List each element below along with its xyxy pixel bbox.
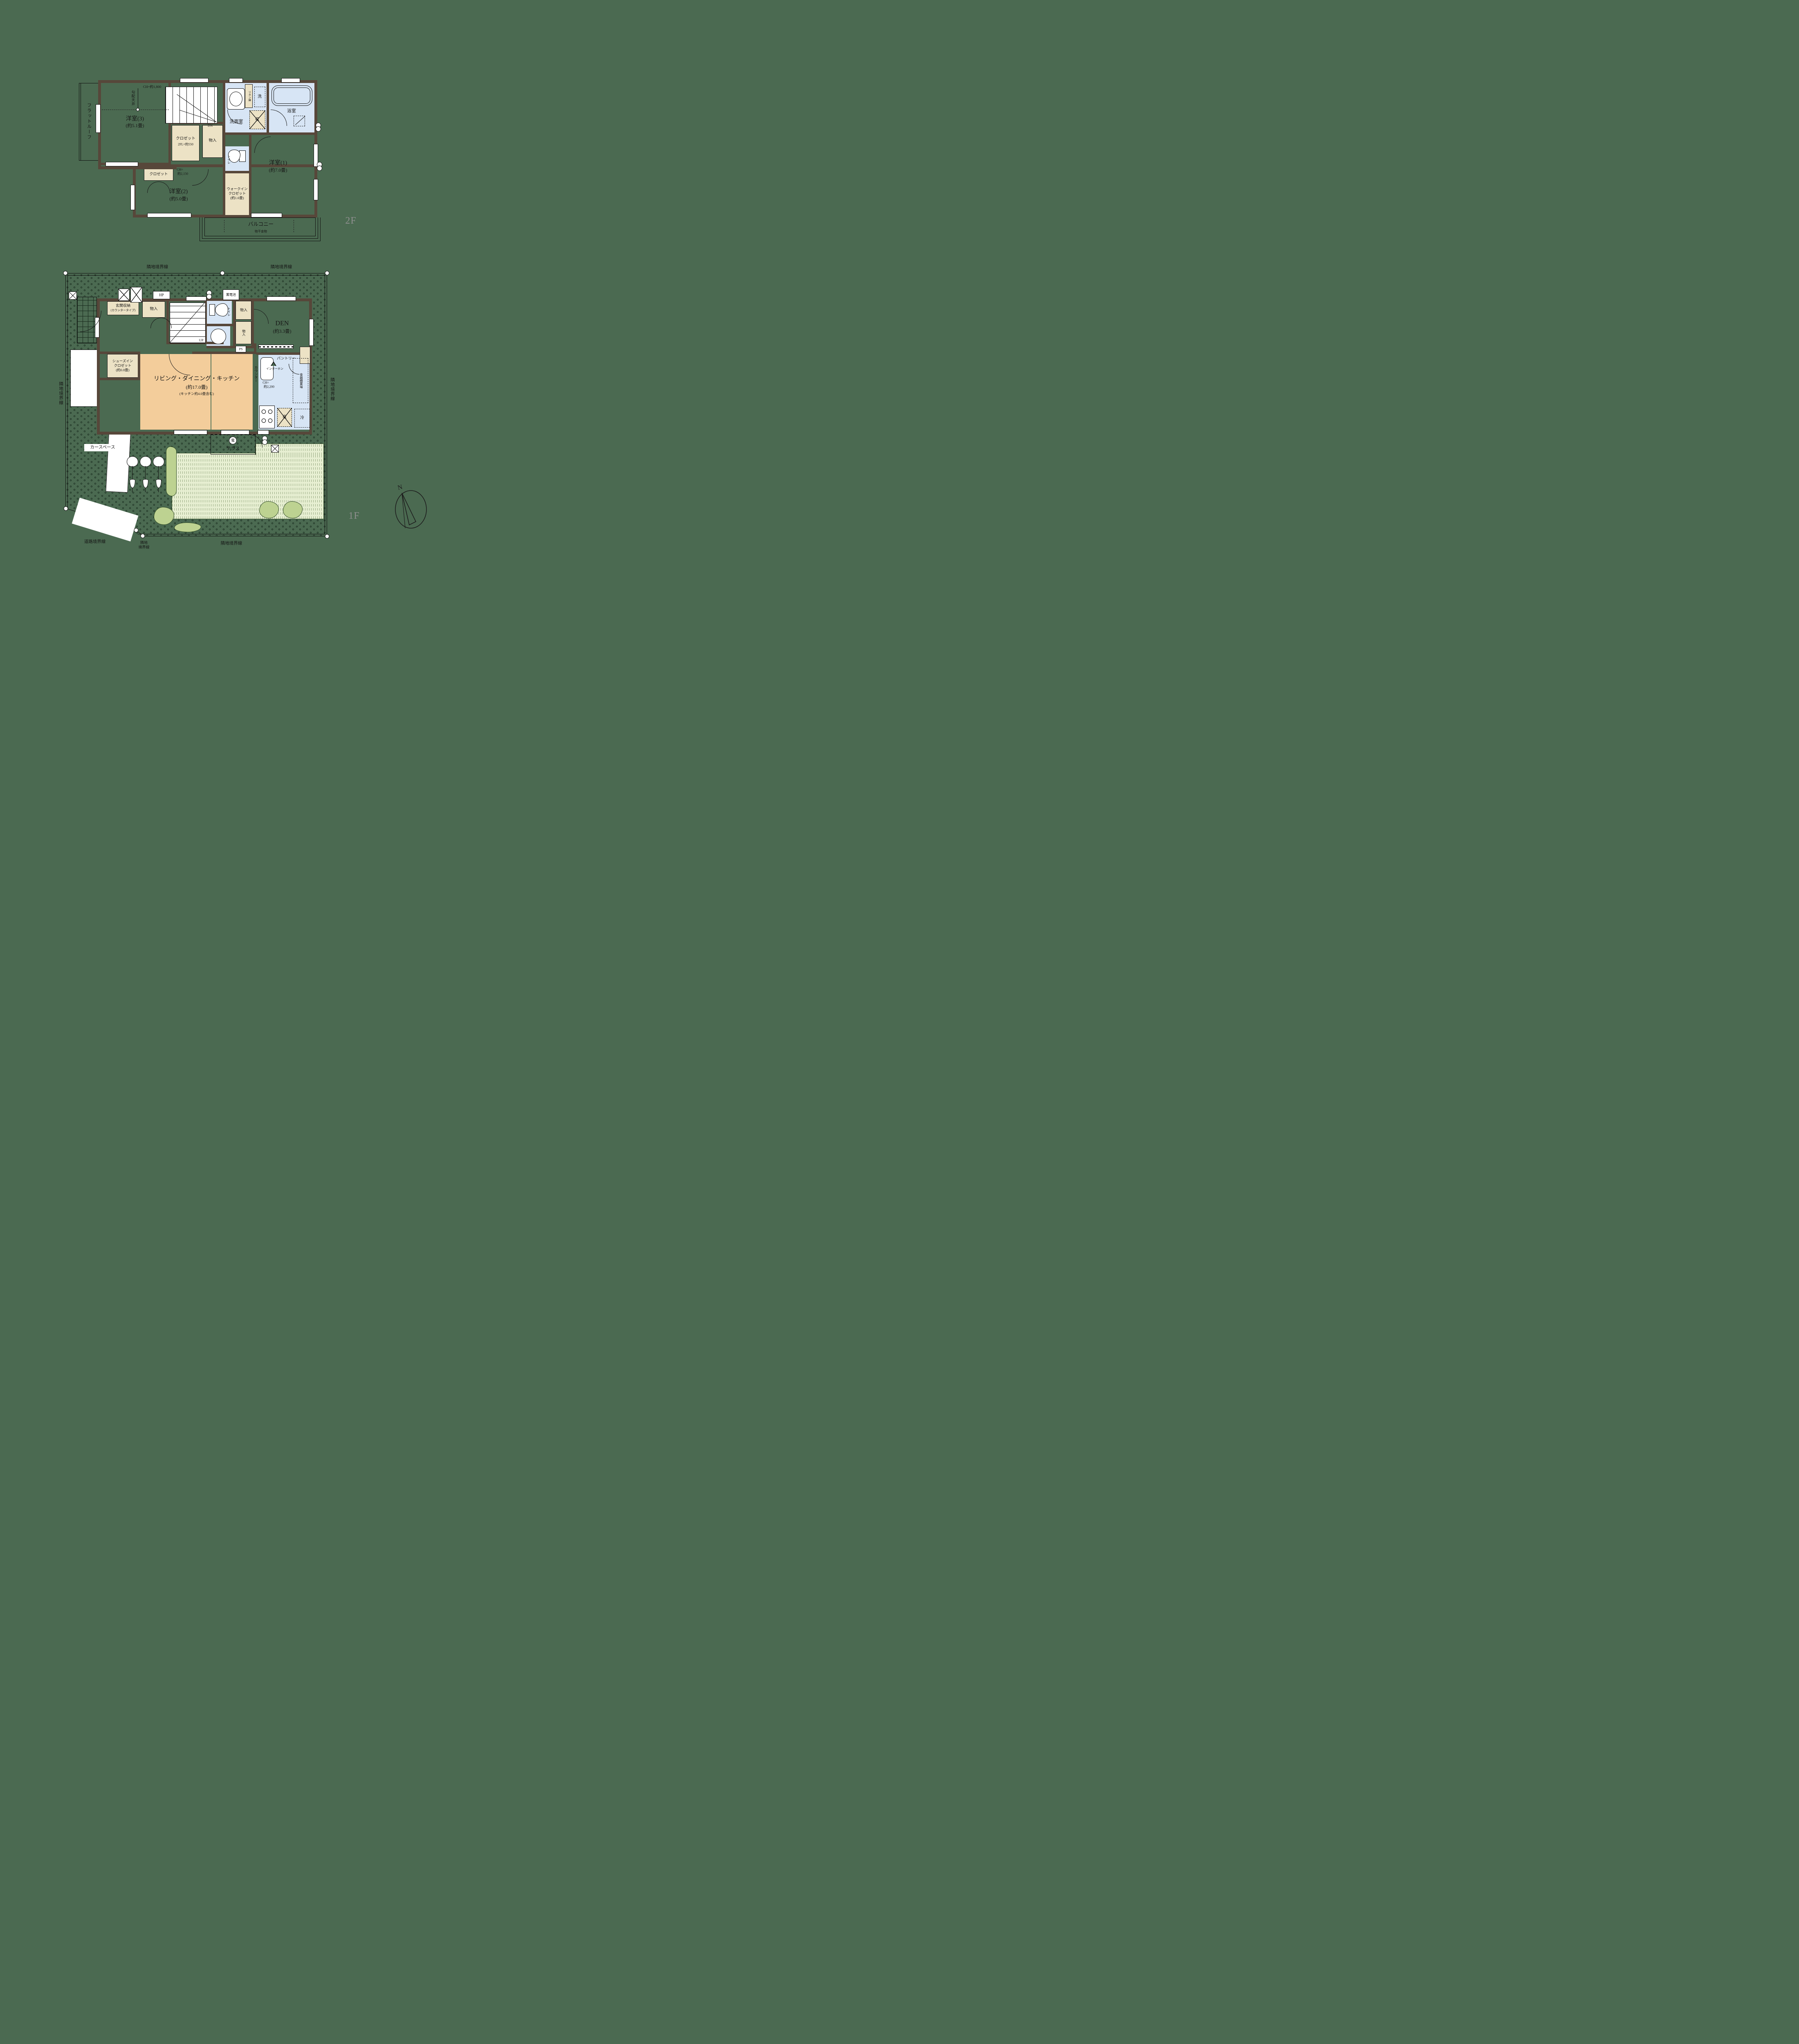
- boundary-right: 隣地境界線: [330, 377, 334, 401]
- car-space-label: カースペース: [90, 445, 115, 450]
- boundary-left: 隣地境界線: [58, 381, 63, 405]
- vent-fan-icon: [206, 290, 212, 299]
- yoshitsu2-name: 洋室(2): [170, 189, 188, 196]
- den-size: (約3.3畳): [273, 329, 291, 335]
- yoshitsu1-size: (約7.0畳): [269, 168, 287, 174]
- f2-closet-label: クロゼット: [176, 137, 195, 141]
- sic-line2: クロゼット: [114, 363, 132, 368]
- ldk-name: リビング・ダイニング・キッチン: [154, 376, 240, 383]
- stairs-up-label: UP: [199, 338, 204, 342]
- terrace-label: テラス: [227, 446, 240, 452]
- wic-line3: (約1.6畳): [230, 196, 244, 200]
- genkan-storage-note: (カウンタータイプ): [111, 309, 136, 312]
- ldk-note: (キッチン約4.0畳含む): [179, 392, 214, 396]
- f1-monoire-a-label: 物入: [150, 307, 157, 312]
- ps-label: PS: [239, 347, 243, 351]
- intercom-label: インターホン: [266, 367, 283, 370]
- vent-fan-icon: [316, 123, 321, 132]
- second-floor-plan: フラットルーフ CH=約1,800 勾配天井 洋室(3) (約5.1畳) DN …: [0, 0, 450, 262]
- f2-storage-label: 収: [255, 117, 259, 122]
- genkan-storage-label: 玄関収納: [116, 304, 130, 308]
- linen-label: リネン庫: [247, 91, 251, 101]
- stairs-dn-label: DN: [208, 123, 213, 128]
- ldk-size: (約17.0畳): [186, 384, 208, 390]
- yoshitsu3-size: (約5.1畳): [126, 123, 144, 129]
- ch2150-line1: CH=: [177, 168, 183, 171]
- f1-stairs: [170, 303, 206, 343]
- hp-label: HP: [159, 293, 164, 298]
- fridge-label: 冷: [300, 416, 304, 421]
- equipment-pad: [130, 287, 142, 303]
- yoshitsu2-size: (約5.0畳): [169, 197, 188, 202]
- yoshitsu1-name: 洋室(1): [269, 160, 287, 167]
- f1-toilet-icon: [215, 303, 228, 316]
- yoshitsu2-closet-label: クロゼット: [149, 172, 168, 177]
- f1-toilet-label: トイレ: [227, 307, 231, 316]
- bathtub-icon: [271, 85, 312, 106]
- compass-north-label: N: [397, 484, 404, 491]
- counter-label: カウンター: [254, 366, 258, 382]
- ev-outlet-label: 電: [231, 438, 235, 442]
- f2-toilet-label: トイレ: [227, 155, 231, 164]
- hanger-label: 物干金物: [255, 230, 267, 234]
- kitchen-storage-label: 収: [283, 415, 287, 420]
- senmen-label: 洗面室: [230, 119, 243, 125]
- wic-line2: クロゼット: [229, 191, 246, 195]
- f1-monoire-b-label: 物入: [240, 308, 247, 313]
- ch1800-label: CH=約1,800: [143, 85, 161, 89]
- equipment-pad: [69, 291, 77, 300]
- cupboard-label: 食器棚置場: [299, 373, 303, 388]
- f1-monoire-c-label: 物入: [242, 329, 245, 336]
- floor-plan-canvas: フラットルーフ CH=約1,800 勾配天井 洋室(3) (約5.1畳) DN …: [0, 0, 450, 603]
- ev-outlet-icon: 電: [229, 437, 237, 444]
- equipment-pad: [118, 289, 130, 301]
- boundary-bottom: 隣地境界線: [221, 541, 242, 546]
- floor-tag-2f: 2F: [345, 215, 356, 226]
- bath-label: 浴室: [287, 109, 296, 114]
- f2-closet-note: 2FL+約550: [178, 142, 193, 146]
- floor-tag-1f: 1F: [348, 510, 359, 522]
- boundary-top-left: 隣地境界線: [147, 265, 168, 270]
- ch2200-line2: 約2,200: [264, 385, 274, 388]
- boundary-corner-line1: 隣地: [140, 541, 148, 545]
- f2-monoire-label: 物入: [209, 139, 216, 143]
- lawn-upper: [256, 444, 324, 455]
- washer-label: 洗: [258, 94, 262, 99]
- battery-label: 蓄電池: [226, 293, 236, 296]
- vent-fan-icon: [262, 436, 267, 445]
- boundary-corner-line2: 境界線: [138, 545, 149, 550]
- pantry-label: パントリー: [277, 356, 295, 361]
- equipment-pad: [271, 445, 279, 453]
- sic-line3: (約0.8畳): [116, 368, 129, 372]
- ch2200-line1: CH=: [262, 381, 269, 384]
- den-name: DEN: [276, 320, 289, 328]
- stove-icon: [259, 406, 275, 428]
- hedge: [166, 446, 177, 496]
- sic-line1: シューズイン: [112, 359, 133, 363]
- vent-fan-icon: [317, 162, 322, 171]
- boundary-top-right: 隣地境界線: [271, 265, 292, 270]
- compass-icon: N: [386, 482, 433, 533]
- f2-stairs: [165, 87, 218, 123]
- flat-roof-label: フラットルーフ: [86, 103, 92, 140]
- wic-line1: ウォークイン: [227, 187, 247, 191]
- intercom-icon: [271, 361, 276, 366]
- first-floor-plan: 隣地境界線 隣地境界線 隣地境界線 隣地境界線 隣地境界線 隣地 境界線 道路境…: [0, 262, 450, 603]
- yoshitsu3-name: 洋室(3): [126, 116, 144, 123]
- balcony-label: バルコニー: [248, 222, 274, 228]
- road-boundary-label: 道路境界線: [84, 540, 106, 545]
- ch2150-line2: 約2,150: [177, 172, 188, 175]
- slope-ceiling-label: 勾配天井: [131, 90, 135, 106]
